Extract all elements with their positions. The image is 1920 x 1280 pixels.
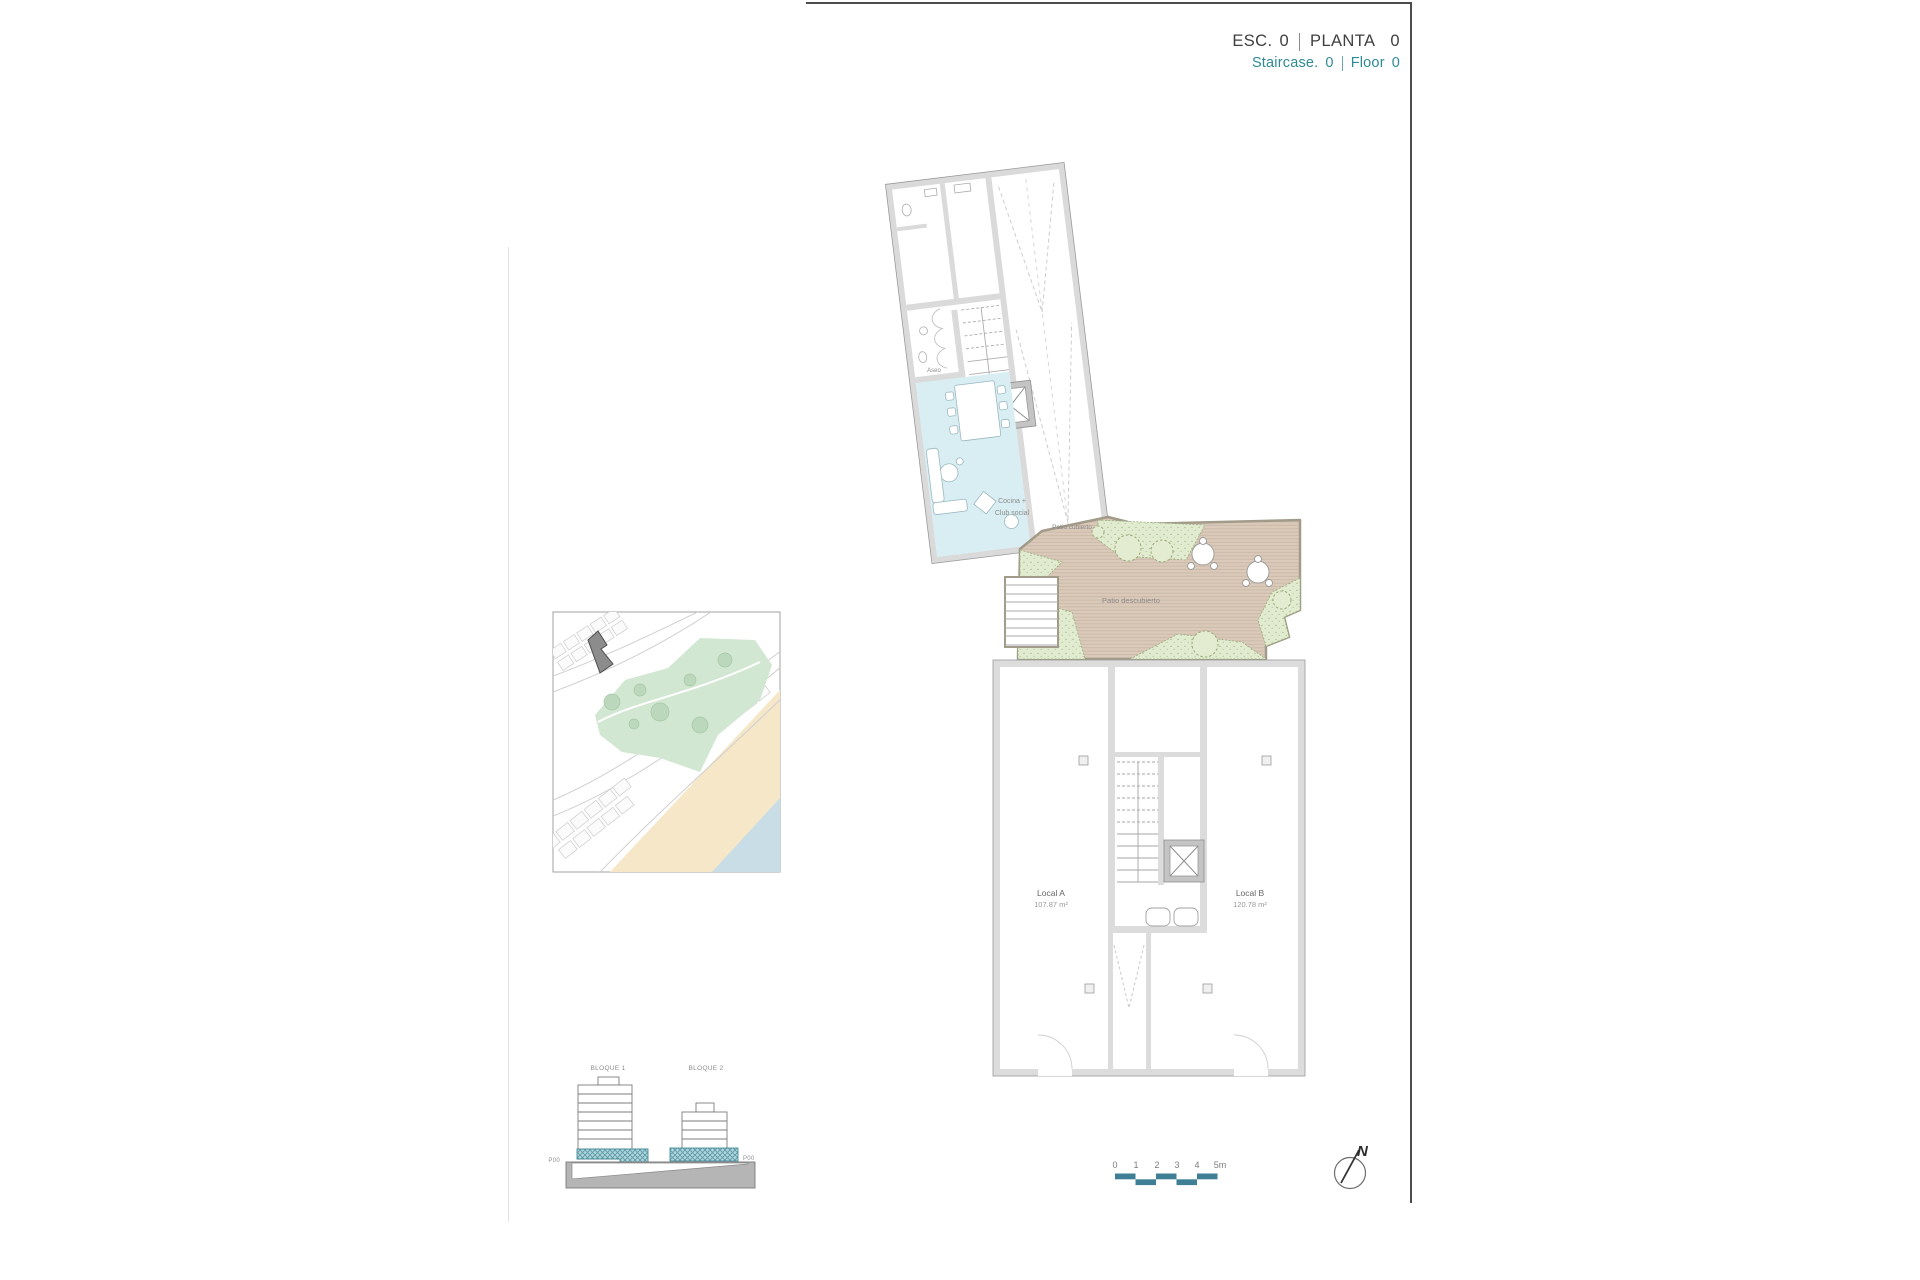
site-location-map	[542, 608, 782, 874]
scale-tick-0: 0	[1112, 1160, 1117, 1170]
cocina-label-line1: Cocina +	[998, 498, 1026, 505]
highlight-band-1	[577, 1149, 648, 1163]
cocina-label-line2: Club social	[995, 510, 1030, 517]
north-label: N	[1357, 1143, 1369, 1160]
patio-staircase	[1005, 577, 1058, 647]
highlight-band-2	[670, 1148, 738, 1161]
block1-label: BLOQUE 1	[591, 1065, 626, 1072]
patio-cubierto-label: Patio cubierto	[1052, 524, 1092, 531]
scale-tick-3: 3	[1174, 1160, 1179, 1170]
tower-1	[578, 1077, 632, 1149]
local-b-name: Local B	[1236, 888, 1265, 898]
patio: Patio cubierto Patio descubierto	[1005, 517, 1300, 659]
door-gap-local-b	[1234, 1069, 1268, 1076]
ground-mass	[566, 1162, 755, 1188]
scale-tick-1: 1	[1133, 1160, 1138, 1170]
scale-tick-4: 4	[1194, 1160, 1199, 1170]
plan-sheet: ESC. 0 PLANTA 0 Staircase. 0 Floor 0	[0, 0, 1920, 1280]
local-b-area: 120.78 m²	[1233, 900, 1267, 909]
core-elevator-shaft	[1164, 840, 1204, 882]
local-a-name: Local A	[1037, 888, 1065, 898]
tower-2	[682, 1103, 727, 1150]
north-compass-icon: N	[1335, 1143, 1370, 1189]
block2-label: BLOQUE 2	[689, 1065, 724, 1072]
aseo-label: Aseo	[927, 368, 941, 374]
scale-bar: 0 1 2 3 4 5m	[1112, 1160, 1226, 1185]
drawing-canvas: Aseo Cocina + Club social	[0, 0, 1920, 1280]
scale-tick-5: 5m	[1214, 1160, 1227, 1170]
door-gap-local-a	[1038, 1069, 1072, 1076]
local-a-area: 107.87 m²	[1034, 900, 1068, 909]
level-label-left: P00	[548, 1158, 560, 1164]
patio-descubierto-label: Patio descubierto	[1102, 596, 1160, 605]
lower-building: Local A 107.87 m² Local B 120.78 m²	[993, 660, 1305, 1076]
section-diagram: BLOQUE 1 BLOQUE 2	[548, 1065, 755, 1188]
scale-tick-2: 2	[1154, 1160, 1159, 1170]
scale-bar-blocks	[1115, 1174, 1218, 1186]
level-label-right: P00	[743, 1156, 755, 1162]
